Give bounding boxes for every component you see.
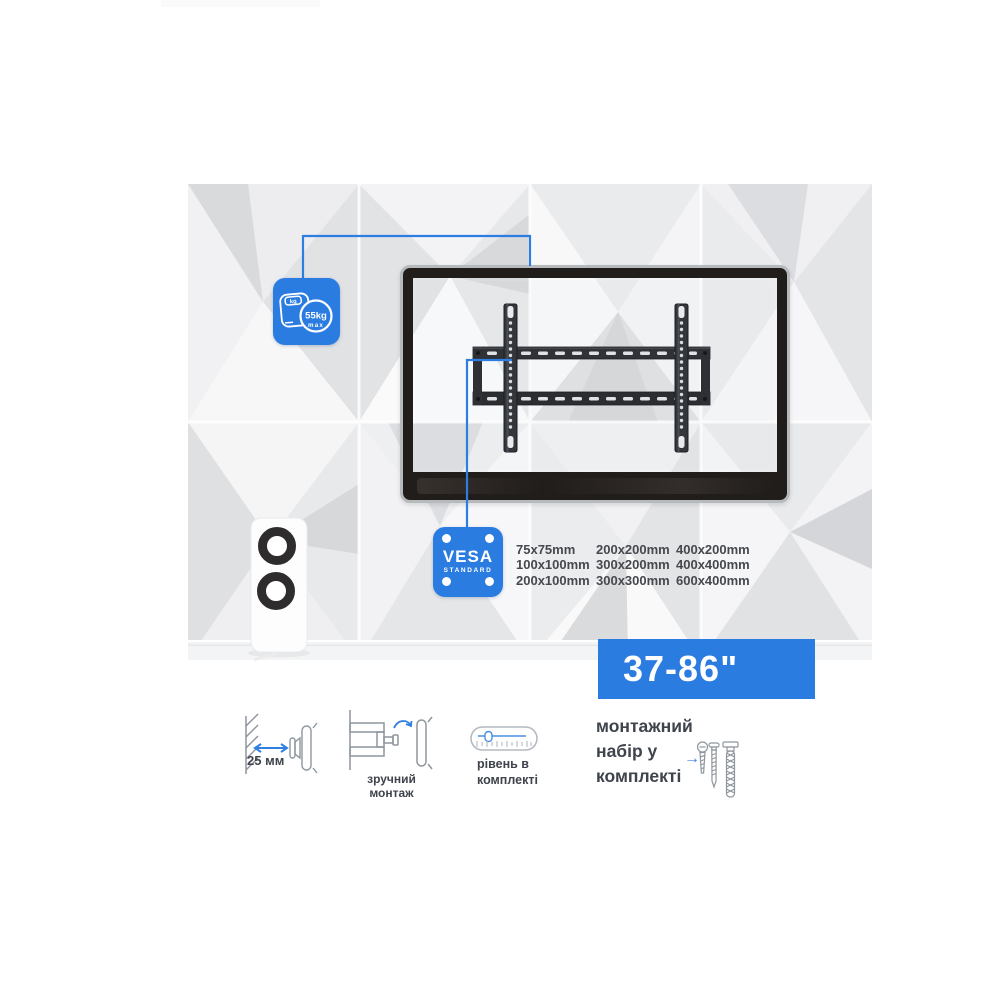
vesa-size-cell: 300x200mm bbox=[596, 557, 676, 572]
top-strip bbox=[161, 0, 320, 7]
vesa-size-column: 200x200mm 300x200mm 300x300mm bbox=[596, 542, 676, 588]
vesa-size-cell: 400x400mm bbox=[676, 557, 756, 572]
size-range-text: 37-86" bbox=[623, 648, 738, 690]
vesa-badge: VESA STANDARD bbox=[433, 527, 503, 597]
vesa-size-cell: 200x200mm bbox=[596, 542, 676, 557]
speaker bbox=[246, 516, 312, 662]
speaker-driver-bottom bbox=[262, 577, 291, 606]
product-card: kg 55kg max VESA STANDARD 75x75mm 100x10… bbox=[0, 0, 1000, 1000]
feature-easy-mount: зручний монтаж bbox=[344, 710, 439, 788]
vesa-size-cell: 600x400mm bbox=[676, 573, 756, 588]
vesa-size-cell: 75x75mm bbox=[516, 542, 596, 557]
vesa-size-list: 75x75mm 100x100mm 200x100mm 200x200mm 30… bbox=[516, 542, 756, 588]
level-label: рівень в комплекті bbox=[477, 756, 538, 788]
vesa-hole-dot bbox=[442, 577, 451, 586]
weight-value: 55kg bbox=[305, 311, 327, 322]
weight-scale-icon: kg 55kg max bbox=[273, 278, 340, 345]
vesa-size-cell: 200x100mm bbox=[516, 573, 596, 588]
vesa-hole-dot bbox=[442, 534, 451, 543]
kg-unit-label: kg bbox=[290, 299, 298, 306]
feature-mount-kit: монтажний набір у комплекті → bbox=[596, 714, 748, 806]
vesa-size-cell: 100x100mm bbox=[516, 557, 596, 572]
vesa-size-cell: 400x200mm bbox=[676, 542, 756, 557]
wall-mount-bracket bbox=[471, 302, 712, 454]
level-label-line1: рівень в bbox=[477, 756, 538, 772]
feature-wall-distance: 25 мм bbox=[230, 712, 322, 782]
vesa-hole-dot bbox=[485, 534, 494, 543]
vesa-size-column: 75x75mm 100x100mm 200x100mm bbox=[516, 542, 596, 588]
tv-bottom-glare bbox=[417, 478, 773, 494]
speaker-driver-top bbox=[263, 532, 292, 561]
tv-rail-right bbox=[675, 304, 688, 452]
vesa-hole-dot bbox=[485, 577, 494, 586]
vesa-title: VESA bbox=[433, 548, 503, 565]
level-label-line2: комплекті bbox=[477, 772, 538, 788]
mount-kit-label-line1: монтажний bbox=[596, 714, 748, 739]
swivel-bracket-icon bbox=[344, 710, 439, 772]
wall-distance-icon bbox=[230, 712, 322, 782]
size-range-banner: 37-86" bbox=[598, 639, 815, 699]
easy-mount-label: зручний монтаж bbox=[344, 772, 439, 800]
feature-level: рівень в комплекті bbox=[468, 712, 552, 792]
max-weight-badge: kg 55kg max bbox=[273, 278, 340, 345]
vesa-subtitle: STANDARD bbox=[433, 567, 503, 574]
spirit-level-icon bbox=[468, 726, 552, 758]
vesa-size-column: 400x200mm 400x400mm 600x400mm bbox=[676, 542, 756, 588]
weight-max-label: max bbox=[308, 322, 324, 329]
tv-rail-left bbox=[504, 304, 517, 452]
wall-distance-label: 25 мм bbox=[247, 753, 284, 768]
screws-icon bbox=[696, 740, 742, 804]
vesa-size-cell: 300x300mm bbox=[596, 573, 676, 588]
